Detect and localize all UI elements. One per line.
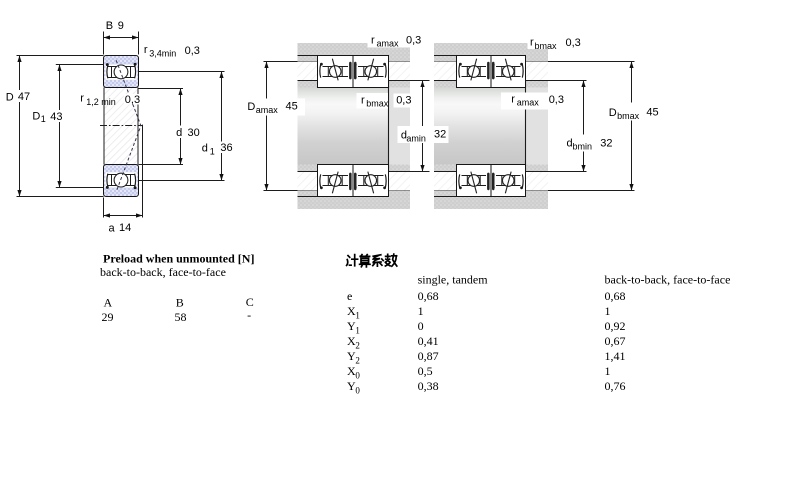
svg-text:1: 1 — [41, 114, 46, 124]
svg-text:r: r — [80, 93, 84, 105]
svg-text:0,92: 0,92 — [605, 319, 626, 333]
svg-text:D: D — [247, 101, 255, 113]
svg-text:a: a — [109, 222, 116, 234]
svg-text:47: 47 — [18, 91, 30, 103]
svg-text:amax: amax — [517, 98, 540, 108]
svg-text:1,41: 1,41 — [605, 349, 626, 363]
svg-text:amin: amin — [406, 134, 426, 144]
svg-text:32: 32 — [600, 137, 612, 149]
svg-text:1: 1 — [605, 304, 611, 318]
svg-text:30: 30 — [188, 127, 200, 139]
svg-text:back-to-back, face-to-face: back-to-back, face-to-face — [605, 273, 731, 287]
svg-text:0,3: 0,3 — [406, 35, 421, 47]
svg-text:D: D — [6, 91, 14, 103]
svg-text:1: 1 — [605, 364, 611, 378]
svg-text:0: 0 — [355, 385, 360, 395]
svg-text:2: 2 — [355, 340, 360, 350]
svg-text:14: 14 — [119, 222, 131, 234]
svg-text:0,3: 0,3 — [185, 45, 200, 57]
svg-text:d: d — [176, 127, 182, 139]
svg-text:0,76: 0,76 — [605, 379, 626, 393]
svg-text:36: 36 — [220, 142, 232, 154]
svg-text:B: B — [106, 20, 113, 32]
svg-text:C: C — [246, 295, 254, 309]
svg-text:43: 43 — [50, 111, 62, 123]
svg-text:r: r — [144, 44, 148, 56]
svg-text:back-to-back, face-to-face: back-to-back, face-to-face — [100, 265, 226, 279]
svg-text:amax: amax — [256, 105, 279, 115]
svg-text:-: - — [247, 308, 251, 322]
svg-text:0,67: 0,67 — [605, 334, 626, 348]
svg-text:0,3: 0,3 — [566, 37, 581, 49]
svg-text:single, tandem: single, tandem — [418, 273, 489, 287]
svg-text:45: 45 — [286, 101, 298, 113]
svg-text:0,3: 0,3 — [396, 94, 411, 106]
svg-text:9: 9 — [118, 20, 124, 32]
svg-text:0,3: 0,3 — [125, 94, 140, 106]
svg-text:bmax: bmax — [535, 41, 558, 51]
svg-text:bmin: bmin — [573, 142, 593, 152]
svg-text:A: A — [104, 296, 113, 310]
svg-text:3,4min: 3,4min — [149, 48, 176, 58]
svg-text:29: 29 — [102, 310, 114, 324]
svg-text:D: D — [32, 111, 40, 123]
svg-text:1: 1 — [418, 304, 424, 318]
svg-text:D: D — [609, 107, 617, 119]
svg-text:2: 2 — [355, 355, 360, 365]
svg-text:e: e — [347, 289, 352, 303]
svg-text:0,38: 0,38 — [418, 379, 439, 393]
svg-text:45: 45 — [646, 106, 658, 118]
svg-text:1: 1 — [210, 146, 215, 156]
svg-text:1,2 min: 1,2 min — [86, 97, 116, 107]
svg-text:0,5: 0,5 — [418, 364, 433, 378]
svg-text:Preload when unmounted [N]: Preload when unmounted [N] — [103, 251, 254, 265]
svg-text:r: r — [511, 93, 515, 105]
svg-text:32: 32 — [434, 128, 446, 140]
svg-text:d: d — [202, 142, 208, 154]
svg-text:1: 1 — [355, 325, 360, 335]
svg-text:B: B — [176, 296, 184, 310]
svg-text:bmax: bmax — [617, 111, 640, 121]
svg-text:0,68: 0,68 — [418, 289, 439, 303]
svg-text:r: r — [371, 35, 375, 47]
svg-text:0,87: 0,87 — [418, 349, 439, 363]
svg-text:0: 0 — [418, 319, 424, 333]
svg-text:0: 0 — [355, 370, 360, 380]
svg-text:amax: amax — [377, 38, 400, 48]
svg-text:r: r — [530, 37, 534, 49]
svg-text:bmax: bmax — [366, 99, 389, 109]
svg-text:58: 58 — [175, 310, 187, 324]
svg-text:0,41: 0,41 — [418, 334, 439, 348]
svg-text:1: 1 — [355, 310, 360, 320]
svg-text:0,68: 0,68 — [605, 289, 626, 303]
svg-text:r: r — [361, 95, 365, 107]
svg-text:0,3: 0,3 — [549, 94, 564, 106]
